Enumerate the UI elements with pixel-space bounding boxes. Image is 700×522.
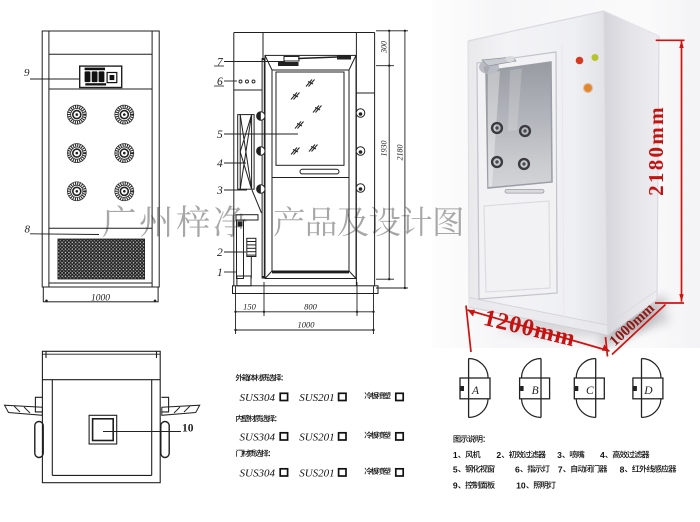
svg-text:SUS201: SUS201 <box>299 468 334 480</box>
svg-text:6: 6 <box>515 464 520 474</box>
svg-text:10: 10 <box>182 423 194 435</box>
svg-text:A: A <box>471 385 480 397</box>
svg-text:1000: 1000 <box>91 294 110 304</box>
svg-text:2: 2 <box>217 247 223 259</box>
svg-text:800: 800 <box>304 302 318 312</box>
svg-text:2180: 2180 <box>395 145 404 161</box>
svg-text:1000: 1000 <box>298 320 316 330</box>
svg-text:3: 3 <box>557 450 562 460</box>
svg-text:9: 9 <box>24 67 30 79</box>
svg-text:8: 8 <box>25 224 31 236</box>
svg-text:2: 2 <box>496 450 501 460</box>
svg-text:C: C <box>586 385 594 397</box>
svg-text:5: 5 <box>453 464 458 474</box>
svg-text:3: 3 <box>216 185 223 197</box>
svg-text:10: 10 <box>516 481 526 491</box>
svg-text:D: D <box>643 385 653 397</box>
svg-text:7: 7 <box>558 464 563 474</box>
svg-text:1: 1 <box>453 450 458 460</box>
svg-text:150: 150 <box>243 302 257 312</box>
svg-text:300: 300 <box>380 41 389 54</box>
svg-text:B: B <box>532 385 539 397</box>
svg-text:1930: 1930 <box>380 141 389 157</box>
svg-text:SUS201: SUS201 <box>299 392 334 404</box>
svg-text:8: 8 <box>620 464 625 474</box>
svg-text:1: 1 <box>217 267 223 279</box>
svg-text:SUS304: SUS304 <box>240 432 276 444</box>
svg-text:7: 7 <box>217 57 224 69</box>
svg-text:SUS304: SUS304 <box>240 392 276 404</box>
svg-text:2180mm: 2180mm <box>644 105 668 196</box>
svg-text:4: 4 <box>600 450 605 460</box>
svg-text:SUS201: SUS201 <box>299 432 334 444</box>
svg-text:SUS304: SUS304 <box>240 468 276 480</box>
svg-text:4: 4 <box>217 158 223 170</box>
svg-text:9: 9 <box>453 481 458 491</box>
svg-text:5: 5 <box>217 129 223 141</box>
